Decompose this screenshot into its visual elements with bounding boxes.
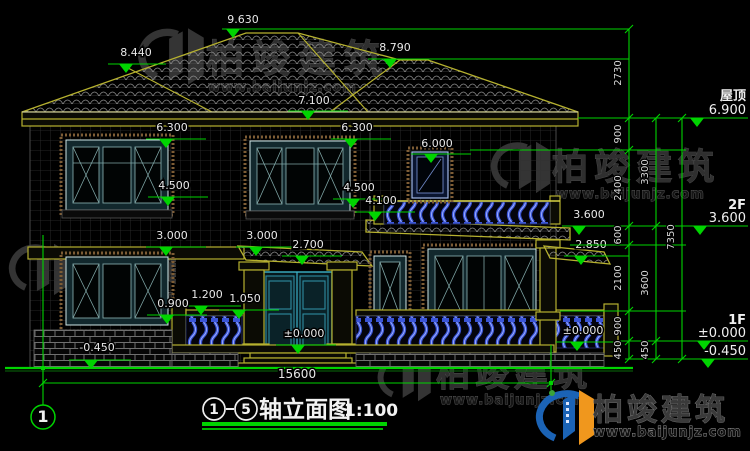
svg-text:3.000: 3.000	[246, 229, 278, 242]
dim-450a: 450	[613, 340, 624, 359]
svg-text:2.700: 2.700	[292, 238, 324, 251]
plinth-brick-porch	[172, 353, 238, 368]
floor-slab	[172, 345, 554, 353]
elevation-canvas: 柏竣建筑 www.baijunjz.com 柏竣建筑 www.baijunjz.…	[0, 0, 750, 451]
dim-3600: 3600	[640, 270, 651, 295]
floor-level-flags: 屋顶6.900 2F3.600 1F±0.000 -0.450	[688, 89, 748, 368]
company-logo: 柏竣建筑 www.baijunjz.com	[539, 390, 741, 445]
plinth-brick-right	[356, 353, 604, 368]
svg-text:1.200: 1.200	[191, 288, 223, 301]
dim-900b: 900	[613, 316, 624, 335]
window-1f-left	[61, 253, 173, 331]
dim-2400: 2400	[613, 175, 624, 200]
svg-text:8.440: 8.440	[120, 46, 152, 59]
svg-text:屋顶: 屋顶	[720, 89, 746, 104]
axis-bubble-label: 1	[37, 407, 48, 426]
terrace-railing	[356, 310, 540, 348]
svg-text:6.900: 6.900	[709, 103, 746, 118]
svg-text:8.790: 8.790	[379, 41, 411, 54]
dim-900a: 900	[613, 124, 624, 143]
logo-url: www.baijunjz.com	[593, 425, 742, 440]
svg-text:4.100: 4.100	[365, 194, 397, 207]
title-underline-thin	[202, 428, 383, 430]
total-width-label: 15600	[278, 367, 316, 381]
title-scale: 1:100	[344, 401, 398, 421]
dim-7350: 7350	[666, 224, 677, 249]
svg-text:6.300: 6.300	[156, 121, 188, 134]
svg-text:1.050: 1.050	[229, 292, 261, 305]
dim-450b: 450	[640, 340, 651, 359]
title-underline-thick	[202, 422, 387, 426]
porch-pillar-right	[327, 262, 357, 352]
svg-text:±0.000: ±0.000	[284, 327, 325, 340]
flag-base: -0.450	[688, 344, 748, 368]
svg-text:4.500: 4.500	[158, 179, 190, 192]
svg-text:3.600: 3.600	[573, 208, 605, 221]
window-2f-left	[61, 135, 173, 218]
logo-brand: 柏竣建筑	[593, 393, 729, 428]
svg-text:3.600: 3.600	[709, 211, 746, 226]
entry-steps	[238, 353, 358, 368]
drawing-title: 1 5 轴立面图 1:100	[202, 396, 398, 430]
logo-leaf	[549, 390, 555, 396]
svg-text:4.500: 4.500	[343, 181, 375, 194]
flag-2f: 2F3.600	[688, 198, 748, 235]
dim-2730: 2730	[613, 60, 624, 85]
dim-600: 600	[613, 225, 624, 244]
title-axis-from: 1	[209, 402, 219, 418]
house-elevation	[5, 33, 633, 371]
dim-2100: 2100	[613, 265, 624, 290]
porch-pillar-left	[239, 262, 269, 352]
svg-text:±0.000: ±0.000	[698, 326, 746, 341]
svg-text:9.630: 9.630	[227, 13, 259, 26]
flag-roof: 屋顶6.900	[688, 89, 748, 127]
watermark-brand: 柏竣建筑	[552, 147, 720, 188]
svg-text:7.100: 7.100	[298, 94, 330, 107]
title-text: 轴立面图	[259, 396, 351, 423]
window-2f-middle	[245, 137, 355, 219]
entry-door	[262, 272, 332, 352]
svg-text:±0.000: ±0.000	[563, 324, 604, 337]
dim-3300: 3300	[640, 159, 651, 184]
title-axis-to: 5	[241, 402, 251, 418]
svg-text:-0.450: -0.450	[704, 344, 746, 359]
svg-text:3.000: 3.000	[156, 229, 188, 242]
svg-text:6.000: 6.000	[421, 137, 453, 150]
logo-building-orange	[579, 390, 594, 445]
svg-text:0.900: 0.900	[157, 297, 189, 310]
svg-text:-0.450: -0.450	[79, 341, 114, 354]
balcony-post	[550, 196, 560, 224]
svg-text:6.300: 6.300	[341, 121, 373, 134]
balcony-railing	[384, 202, 550, 224]
